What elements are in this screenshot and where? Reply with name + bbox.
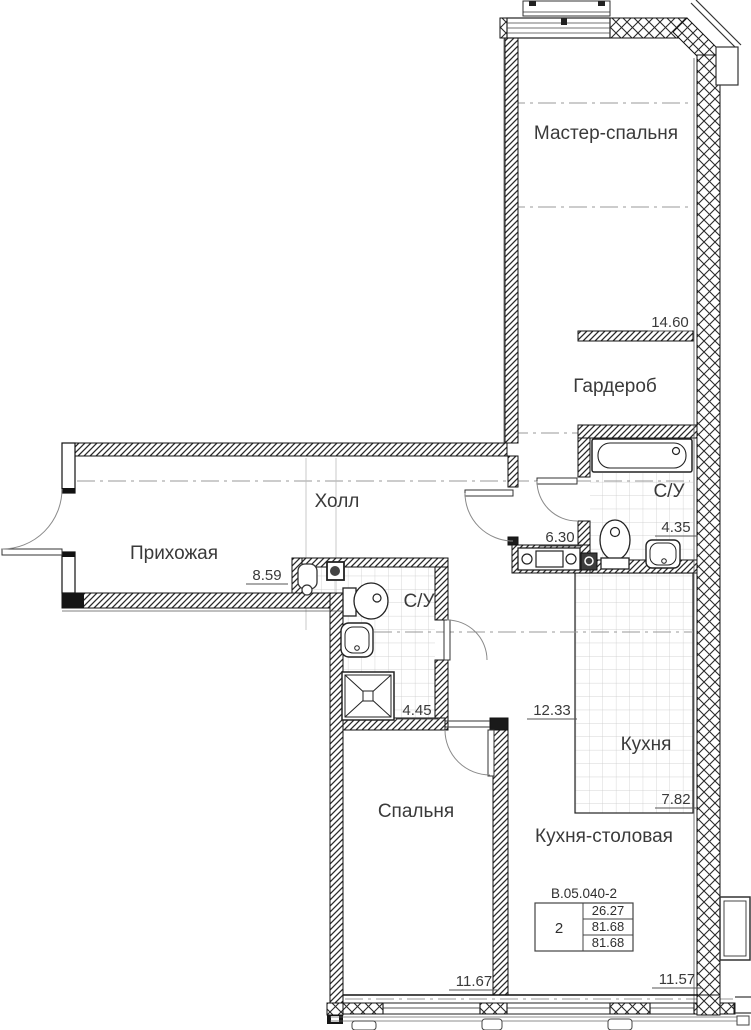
area-label-corridor: 6.30: [545, 529, 574, 546]
entrance-door: [2, 489, 62, 555]
area-label-master-bedroom: 14.60: [651, 314, 689, 331]
bottom-wall: [327, 995, 751, 1030]
area-label-dining-zone: 12.33: [533, 702, 571, 719]
wall-master-wardrobe: [578, 331, 693, 341]
room-label-wardrobe: Гардероб: [573, 376, 657, 397]
sink-top: [646, 540, 680, 568]
area-label-bathroom-top: 4.35: [661, 519, 690, 536]
wall-bath1-left-b: [578, 521, 590, 547]
wall-right-exterior: [697, 55, 720, 1013]
info-table-title: В.05.040-2: [551, 886, 617, 901]
bathtub: [592, 439, 692, 472]
wall-entry-bottom: [62, 593, 343, 608]
shower: [342, 672, 394, 720]
window-band: [343, 1003, 735, 1014]
info-table-value-total2: 81.68: [592, 935, 625, 950]
wall-jamb-hall: [508, 456, 518, 487]
room-label-bathroom-mid: С/У: [403, 591, 435, 612]
wall-bath1-left-a: [578, 438, 590, 477]
hall-corridor-door: [465, 490, 513, 541]
area-label-bathroom-mid: 4.45: [402, 702, 431, 719]
entrance-wall: [62, 443, 84, 608]
drain-niche: [327, 562, 344, 580]
toilet-top: [600, 520, 630, 569]
drain-top: [581, 553, 597, 570]
area-label-kitchen-dining: 11.57: [659, 971, 695, 988]
bath-mid-door: [444, 620, 487, 660]
bath-top-door: [537, 478, 577, 521]
room-label-kitchen: Кухня: [621, 734, 672, 755]
wall-bath2-right-a: [435, 567, 448, 620]
wall-column-left: [505, 38, 518, 443]
area-label-entry: 8.59: [252, 567, 281, 584]
info-table: В.05.040-2 2 26.27 81.68 81.68: [535, 886, 633, 951]
right-wall-duct: [720, 897, 750, 960]
area-label-kitchen: 7.82: [661, 791, 690, 808]
balcony-detail: [352, 1021, 376, 1030]
wall-bedroom-jamb: [490, 718, 508, 730]
wall-hall-top: [62, 443, 507, 456]
info-table-value-total: 81.68: [592, 919, 625, 934]
floor-plan: Мастер-спальня 14.60 Гардероб С/У 4.35 6…: [0, 0, 751, 1030]
vent-block: [518, 548, 580, 570]
room-label-bedroom: Спальня: [378, 801, 454, 822]
balcony-detail: [608, 1019, 632, 1030]
info-table-value-living: 26.27: [592, 903, 625, 918]
toilet-mid: [343, 583, 388, 619]
room-label-kitchen-dining: Кухня-столовая: [535, 826, 673, 847]
room-label-entry: Прихожая: [130, 543, 218, 564]
area-label-bedroom: 11.67: [456, 973, 492, 990]
balcony-detail: [482, 1019, 502, 1030]
parapet: [523, 1, 610, 16]
doors: [2, 478, 577, 776]
floor-plan-svg: Мастер-спальня 14.60 Гардероб С/У 4.35 6…: [0, 0, 751, 1030]
bedroom-door: [445, 721, 494, 776]
kitchen-zone: [575, 573, 693, 813]
sink-mid: [341, 623, 373, 657]
wall-bedroom-divider: [493, 730, 508, 995]
wall-wardrobe-bath: [578, 425, 697, 438]
room-label-bathroom-top: С/У: [653, 481, 685, 502]
room-label-hall: Холл: [315, 491, 360, 512]
room-label-master-bedroom: Мастер-спальня: [534, 123, 678, 144]
corner-pier: [716, 47, 738, 85]
wall-bedroom-left: [330, 593, 343, 1015]
info-table-rooms-count: 2: [555, 920, 563, 937]
